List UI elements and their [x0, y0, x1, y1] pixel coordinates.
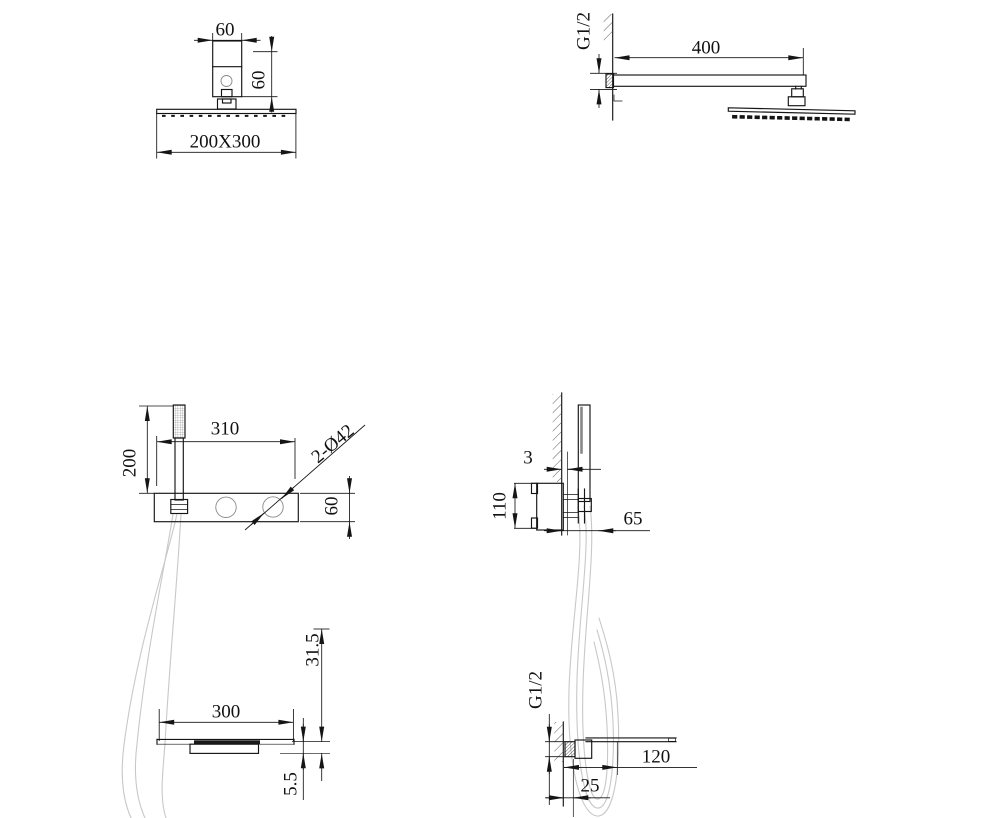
shower-arm — [613, 75, 806, 86]
shower-hose-side — [569, 506, 619, 816]
dim-spout-width: 300 — [212, 703, 241, 722]
spout-body — [190, 744, 259, 753]
mixer-front-view — [122, 405, 365, 818]
overhead-shower-side-view — [590, 14, 855, 120]
head-clip — [218, 99, 237, 109]
shower-head-side — [728, 108, 855, 114]
technical-drawing-canvas: 60 60 200X300 G1/2 400 200 310 2-Ø42 60 … — [0, 0, 999, 818]
wall-connector — [606, 74, 614, 88]
dim-head-size: 200X300 — [190, 133, 261, 152]
shower-head-plate — [157, 109, 296, 113]
dim-wall-thickness: 3 — [523, 449, 533, 468]
nozzle-dashes — [734, 117, 850, 120]
dim-spout-inset: 25 — [581, 777, 600, 796]
dim-bracket-width: 60 — [216, 21, 235, 40]
dim-arm-length: 400 — [692, 39, 721, 58]
ceiling-bracket — [213, 41, 242, 97]
dim-spout-length: 120 — [642, 748, 671, 767]
hand-shower-handle — [175, 438, 183, 500]
hand-shower-side — [578, 405, 590, 502]
dim-valve-height: 110 — [491, 492, 510, 520]
hand-shower-head — [173, 405, 185, 438]
dim-projection: 65 — [624, 510, 643, 529]
mixer-side-view — [514, 393, 650, 816]
dim-plate-thickness: 5.5 — [282, 772, 301, 796]
knob-hole-right — [263, 497, 283, 517]
shower-hose-front — [122, 514, 181, 818]
label-thread-bottom: G1/2 — [527, 671, 546, 709]
wall-hatch — [604, 14, 613, 41]
dim-panel-width: 310 — [211, 420, 240, 439]
arm-joint — [788, 97, 805, 106]
dim-hand-shower-height: 200 — [121, 449, 140, 478]
hand-shower-socket — [171, 500, 188, 514]
label-thread-top: G1/2 — [575, 12, 594, 50]
dim-spout-height: 31.5 — [304, 633, 323, 666]
concealed-valve-body — [537, 483, 564, 530]
spout-side-view — [545, 714, 697, 817]
dim-bracket-height: 60 — [250, 71, 269, 90]
ball-joint — [221, 76, 232, 87]
knob-hole-left — [216, 497, 236, 517]
wall-connector — [565, 742, 575, 757]
wall-hatch — [553, 394, 562, 482]
shower-system-drawing — [0, 0, 999, 818]
dim-panel-height: 60 — [323, 497, 342, 516]
